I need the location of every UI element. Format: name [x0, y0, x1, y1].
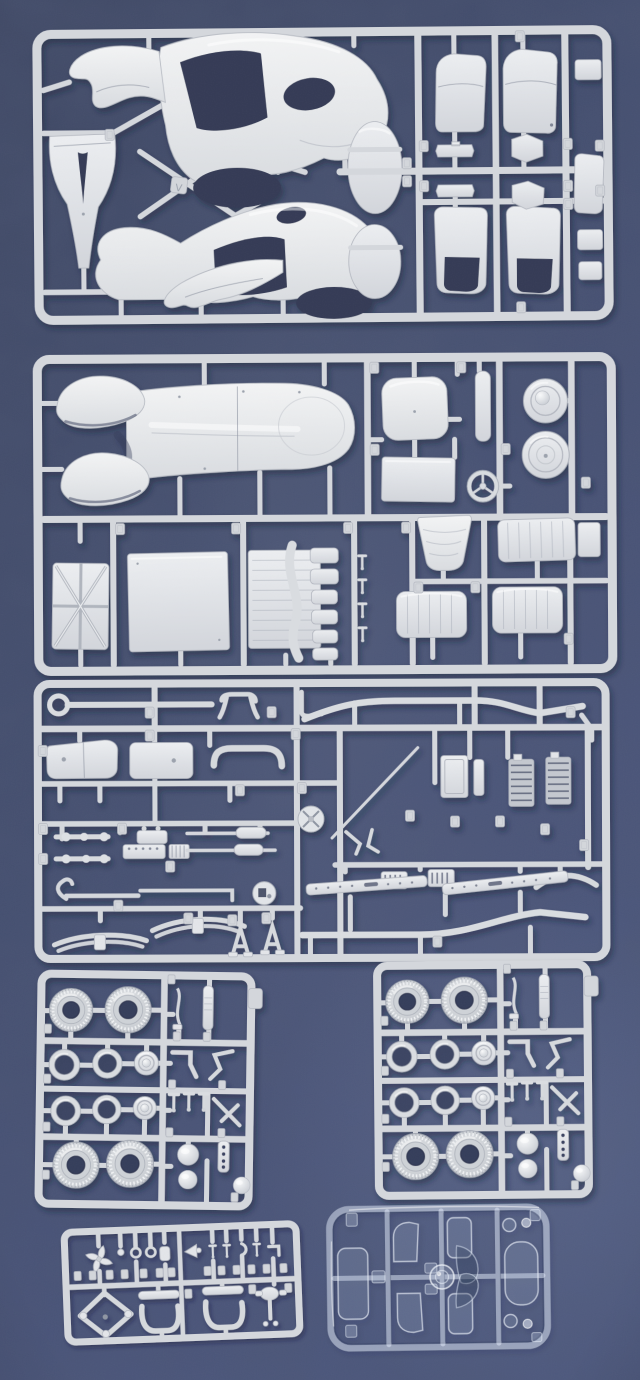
- kit-photo: V: [0, 0, 640, 1380]
- kit-photo-stage: V: [0, 0, 640, 1380]
